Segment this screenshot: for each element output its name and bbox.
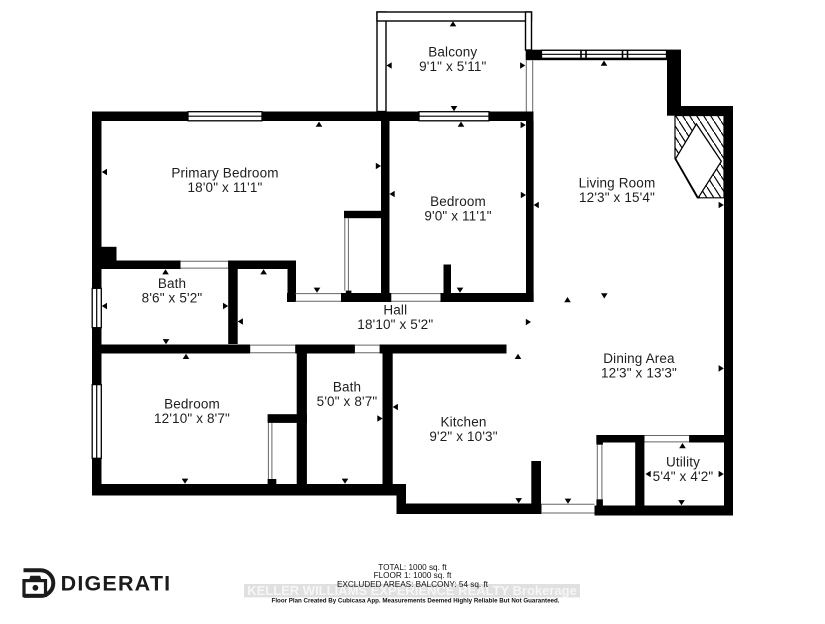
svg-text:5'4" x 4'2": 5'4" x 4'2" <box>653 469 714 484</box>
svg-text:Bath: Bath <box>158 276 186 291</box>
svg-text:18'0" x 11'1": 18'0" x 11'1" <box>188 180 263 195</box>
svg-text:12'3" x 15'4": 12'3" x 15'4" <box>579 190 655 205</box>
svg-text:DIGERATI: DIGERATI <box>61 571 172 595</box>
svg-text:18'10" x 5'2": 18'10" x 5'2" <box>357 317 433 332</box>
svg-text:Living Room: Living Room <box>579 176 656 191</box>
svg-text:Bedroom: Bedroom <box>164 397 220 412</box>
svg-text:9'0" x 11'1": 9'0" x 11'1" <box>424 209 491 224</box>
svg-text:Balcony: Balcony <box>428 45 477 60</box>
svg-text:9'1" x 5'11": 9'1" x 5'11" <box>419 59 486 74</box>
svg-text:5'0" x 8'7": 5'0" x 8'7" <box>317 394 378 409</box>
svg-text:12'3" x 13'3": 12'3" x 13'3" <box>601 366 677 381</box>
svg-text:8'6" x 5'2": 8'6" x 5'2" <box>142 290 203 305</box>
svg-text:Dining Area: Dining Area <box>603 351 675 366</box>
svg-text:EXCLUDED AREAS: BALCONY: 54 sq: EXCLUDED AREAS: BALCONY: 54 sq. ft <box>337 580 489 589</box>
svg-text:Bedroom: Bedroom <box>430 194 486 209</box>
svg-text:Floor Plan Created By Cubicasa: Floor Plan Created By Cubicasa App. Meas… <box>272 598 560 605</box>
svg-text:9'2" x 10'3": 9'2" x 10'3" <box>429 429 497 444</box>
svg-text:Hall: Hall <box>383 302 407 317</box>
svg-text:Utility: Utility <box>666 455 700 470</box>
svg-text:Bath: Bath <box>333 379 361 394</box>
svg-text:Kitchen: Kitchen <box>440 415 486 430</box>
svg-text:12'10" x 8'7": 12'10" x 8'7" <box>154 411 230 426</box>
svg-text:Primary Bedroom: Primary Bedroom <box>171 166 278 181</box>
